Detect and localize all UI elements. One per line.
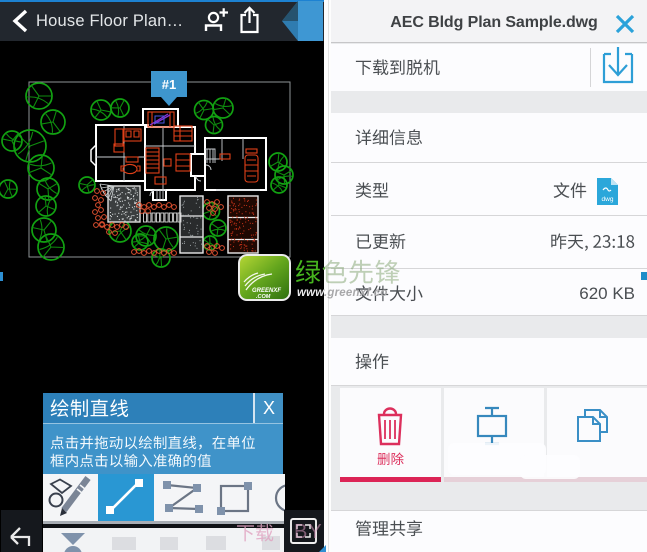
svg-text:dwg: dwg [602,196,614,203]
svg-text:#1: #1 [162,77,176,92]
svg-text:.COM: .COM [256,294,271,300]
